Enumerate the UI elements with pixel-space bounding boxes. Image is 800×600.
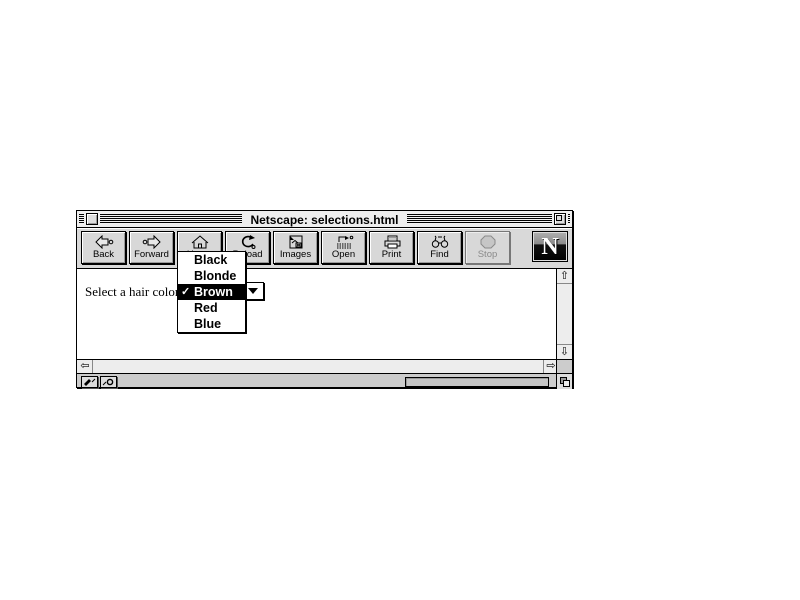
images-button[interactable]: Images: [273, 231, 318, 264]
menu-item-brown-selected[interactable]: ✓ Brown: [178, 284, 245, 300]
netscape-window: Netscape: selections.html Back Forward: [76, 210, 573, 388]
vertical-scrollbar[interactable]: ⇧ ⇩: [556, 269, 572, 359]
netscape-logo[interactable]: N: [532, 231, 568, 262]
back-arrow-icon: [93, 235, 115, 249]
hair-color-dropdown-menu: Black Blonde ✓ Brown Red Blue: [177, 251, 246, 333]
forward-arrow-icon: [141, 235, 163, 249]
open-button-label: Open: [332, 250, 355, 260]
horizontal-scrollbar[interactable]: ⇦ ⇨: [77, 359, 558, 373]
select-prompt-label: Select a hair color:: [85, 284, 183, 300]
titlebar-title-wrap: Netscape: selections.html: [77, 211, 572, 227]
back-button-label: Back: [93, 250, 114, 260]
images-button-label: Images: [280, 250, 311, 260]
checkmark-icon: ✓: [181, 284, 190, 300]
resize-grip-icon: [563, 380, 570, 387]
stop-button: Stop: [465, 231, 510, 264]
stop-button-label: Stop: [478, 250, 498, 260]
menu-item-label: Red: [194, 301, 218, 315]
images-picture-icon: [285, 235, 307, 249]
forward-button-label: Forward: [134, 250, 169, 260]
desktop: Netscape: selections.html Back Forward: [0, 0, 800, 600]
dropdown-arrow-icon: [248, 288, 258, 294]
printer-icon: [381, 235, 403, 249]
menu-item-black[interactable]: Black: [178, 252, 245, 268]
print-button-label: Print: [382, 250, 402, 260]
scroll-up-arrow-icon[interactable]: ⇧: [557, 269, 572, 284]
window-close-box[interactable]: [86, 213, 98, 225]
window-title: Netscape: selections.html: [242, 212, 406, 228]
find-button-label: Find: [430, 250, 448, 260]
find-button[interactable]: Find: [417, 231, 462, 264]
stop-octagon-icon: [477, 235, 499, 249]
print-button[interactable]: Print: [369, 231, 414, 264]
menu-item-blonde[interactable]: Blonde: [178, 268, 245, 284]
broken-key-left-icon: [81, 376, 98, 388]
page-content: Select a hair color:: [77, 269, 572, 359]
menu-item-blue[interactable]: Blue: [178, 316, 245, 332]
reload-circular-arrow-icon: [237, 235, 259, 249]
menu-item-red[interactable]: Red: [178, 300, 245, 316]
toolbar: Back Forward Home Reload: [77, 228, 572, 269]
menu-item-label: Blue: [194, 317, 221, 331]
window-titlebar[interactable]: Netscape: selections.html: [77, 211, 572, 228]
progress-bar: [405, 377, 549, 387]
zoom-box-inner-square: [556, 215, 562, 221]
home-house-icon: [189, 235, 211, 249]
window-zoom-box[interactable]: [554, 213, 566, 225]
back-button[interactable]: Back: [81, 231, 126, 264]
open-button[interactable]: Open: [321, 231, 366, 264]
window-resize-grip[interactable]: [556, 374, 572, 389]
broken-key-right-icon: [100, 376, 117, 388]
menu-item-label: Brown: [194, 285, 233, 299]
forward-button[interactable]: Forward: [129, 231, 174, 264]
open-location-icon: [333, 235, 355, 249]
menu-item-label: Black: [194, 253, 227, 267]
security-indicator[interactable]: [81, 376, 119, 388]
scroll-left-arrow-icon[interactable]: ⇦: [78, 360, 93, 373]
status-bar: [77, 373, 572, 387]
menu-item-label: Blonde: [194, 269, 236, 283]
binoculars-icon: [429, 235, 451, 249]
scrollbar-corner: [556, 359, 572, 373]
scroll-down-arrow-icon[interactable]: ⇩: [557, 344, 572, 359]
netscape-logo-letter: N: [541, 233, 558, 261]
